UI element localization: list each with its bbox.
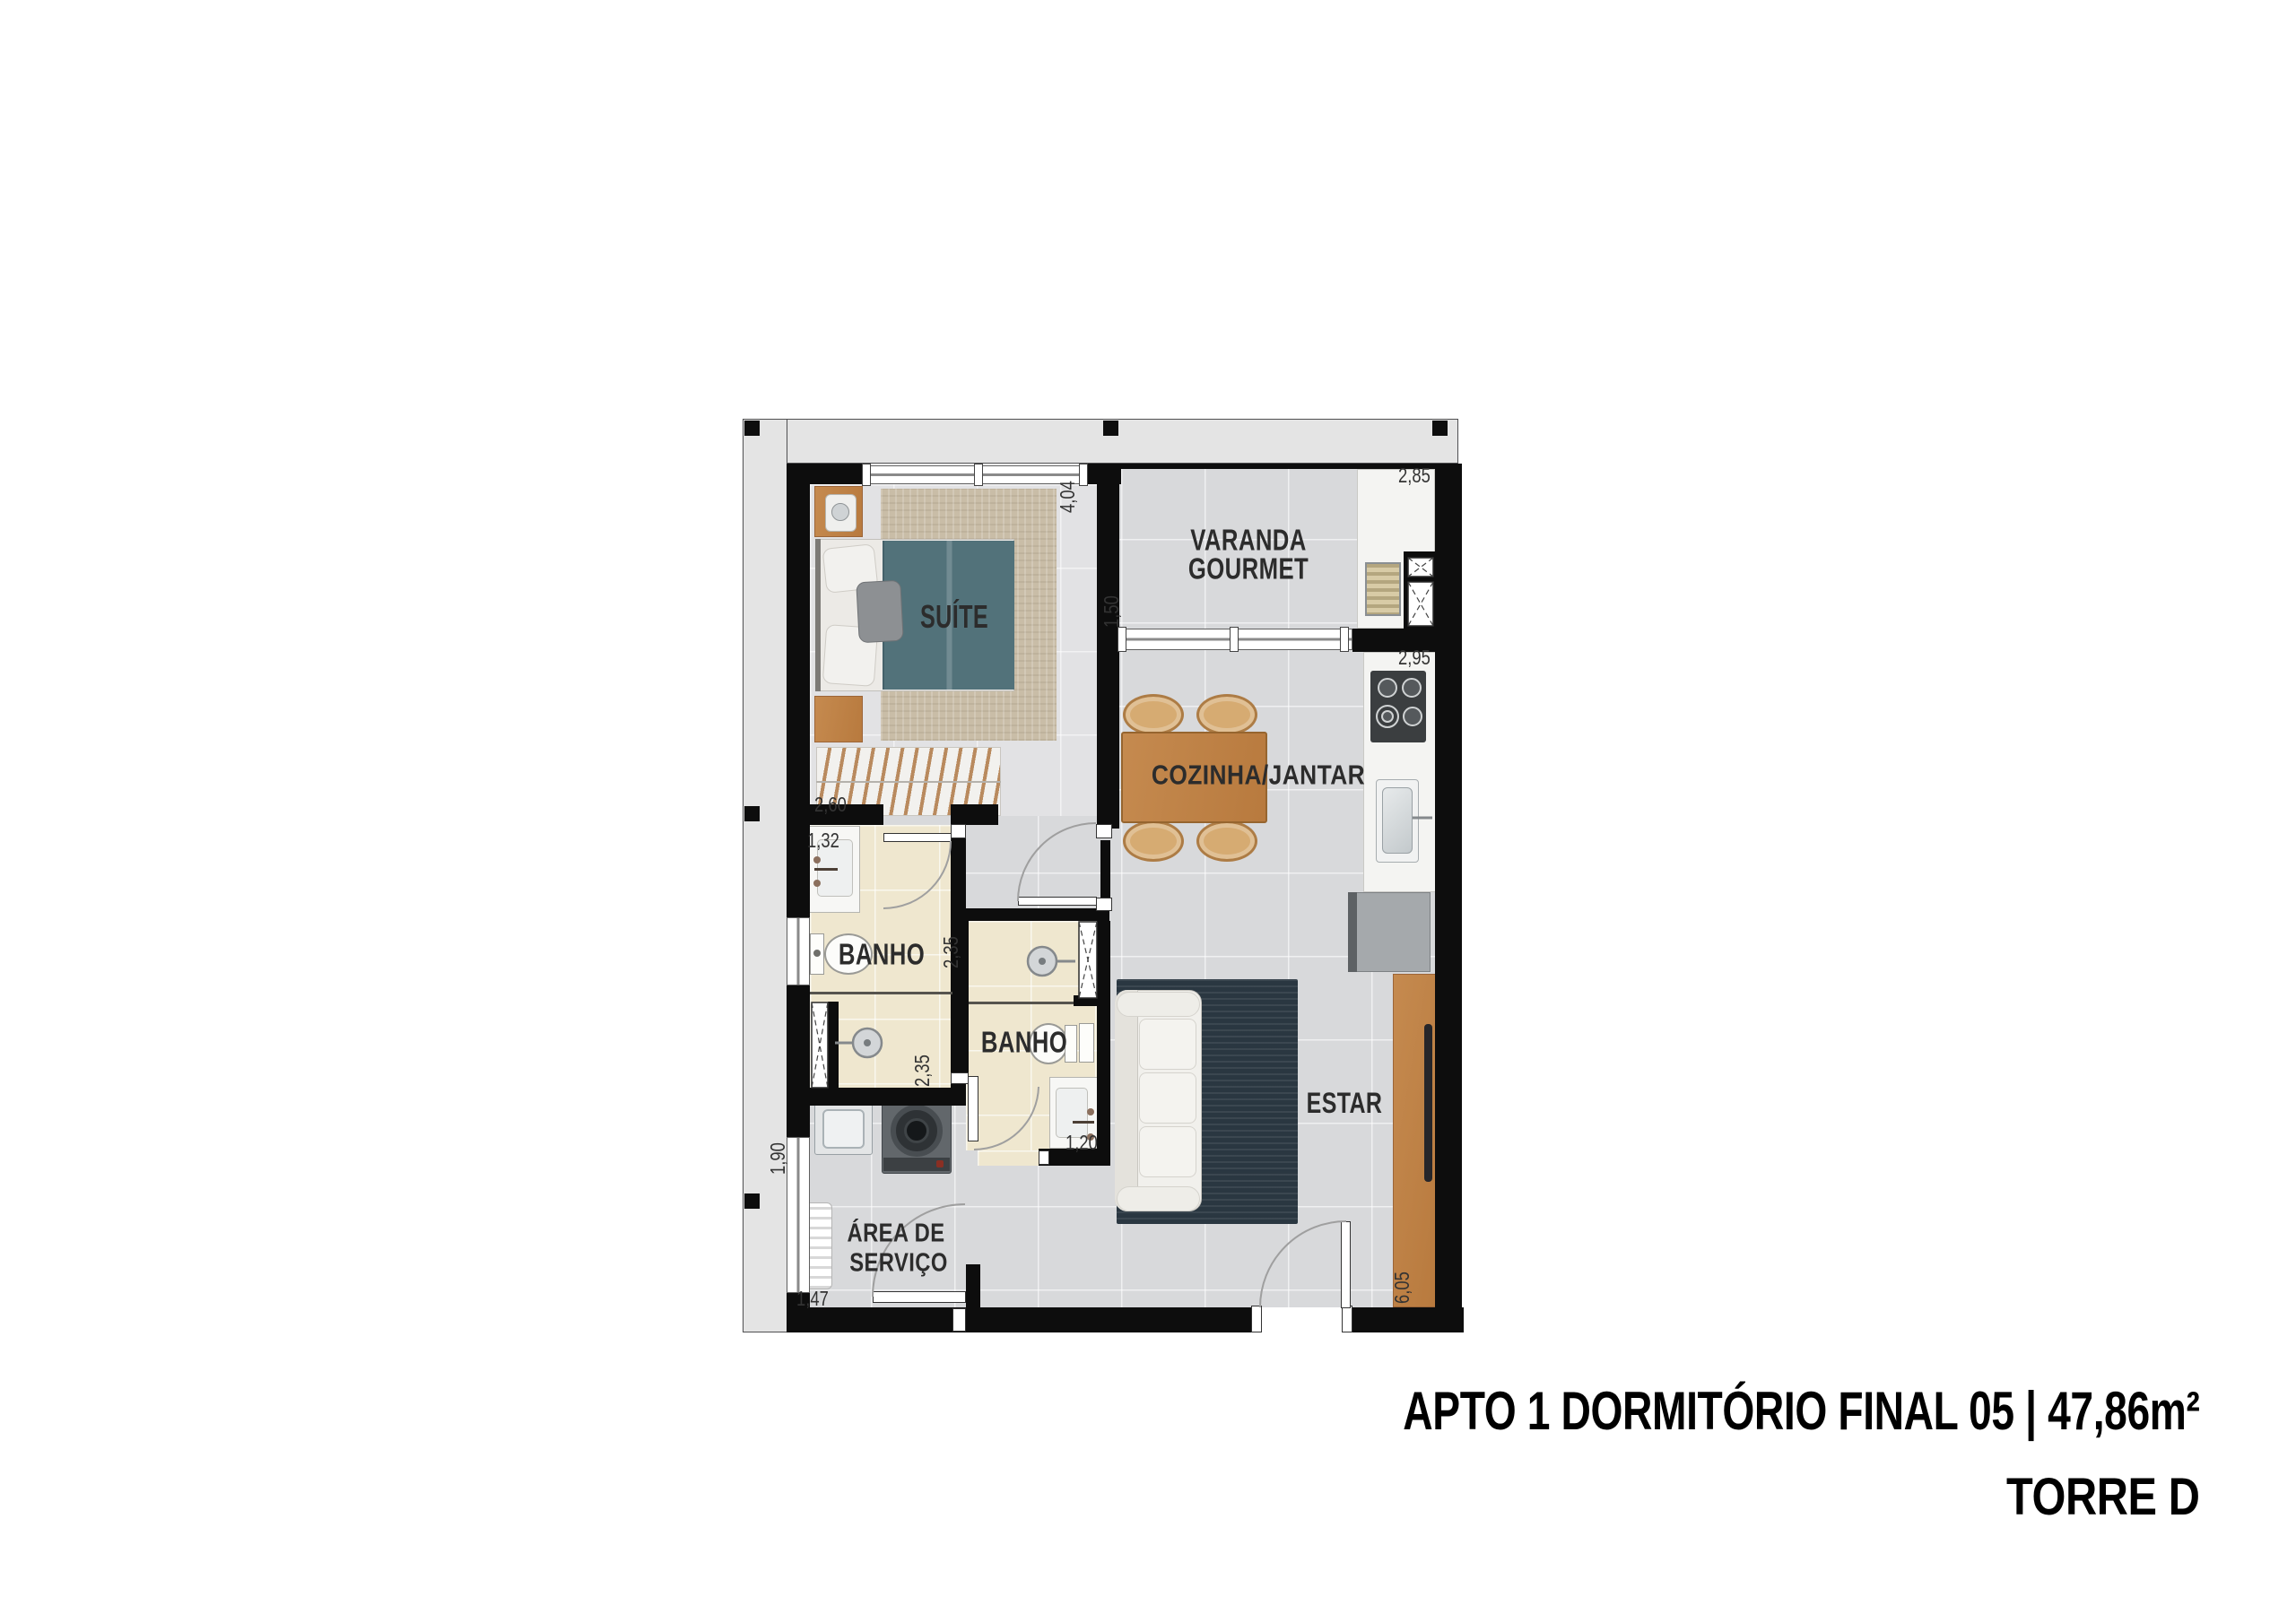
- column-marker: [1103, 421, 1118, 436]
- fridge: [1348, 892, 1431, 972]
- sofa-back: [1115, 990, 1138, 1211]
- sofa-cushion: [1139, 1072, 1196, 1124]
- dim-servico-width: 1,47: [796, 1289, 829, 1309]
- pillow-accent: [856, 580, 903, 644]
- dining-chair: [1196, 820, 1257, 862]
- wall: [787, 1088, 966, 1106]
- faucet-knob: [813, 856, 821, 864]
- room-label-estar: ESTAR: [1307, 1089, 1383, 1117]
- slab-band-top: [743, 419, 1458, 464]
- door-jamb: [1039, 1150, 1049, 1165]
- wall: [1087, 464, 1097, 484]
- wall: [951, 908, 969, 1072]
- wall-suite-divider: [1097, 484, 1119, 829]
- dim-suite-depth: 4,04: [1057, 481, 1078, 513]
- dim-banho-social-depth: 2,35: [941, 936, 961, 968]
- bath-shelf: [1079, 1023, 1094, 1063]
- sofa-cushion: [1139, 1019, 1196, 1070]
- column-marker: [744, 806, 760, 821]
- floor-plan-canvas: SUÍTE VARANDA GOURMET COZINHA/JANTAR BAN…: [0, 0, 2296, 1623]
- column-marker: [1432, 421, 1448, 436]
- window-mullion: [1340, 627, 1349, 652]
- entry-opening: [1262, 1307, 1342, 1332]
- faucet-handle: [814, 868, 838, 871]
- window-mullion: [862, 464, 871, 486]
- washer-drum: [904, 1118, 929, 1143]
- room-label-suite: SUÍTE: [920, 601, 988, 633]
- wall: [1097, 464, 1121, 484]
- sofa-cushion: [1139, 1126, 1196, 1177]
- dim-banho-suite-width: 1,32: [807, 830, 839, 851]
- door-jamb: [1096, 898, 1112, 911]
- tv: [1424, 1024, 1432, 1182]
- door-jamb: [951, 824, 966, 838]
- dim-varanda-depth: 1,50: [1101, 595, 1122, 628]
- room-label-banho-suite: BANHO: [839, 940, 925, 969]
- grill: [1365, 562, 1401, 616]
- toilet-flush: [813, 950, 821, 957]
- wall-stub: [966, 1264, 980, 1307]
- suite-bath-door-leaf: [883, 833, 952, 842]
- wardrobe-divider: [816, 781, 1001, 783]
- dim-varanda-width: 2,85: [1398, 465, 1431, 486]
- kitchen-sink-basin: [1382, 787, 1413, 854]
- shower-stub: [828, 1002, 839, 1088]
- burner: [1403, 707, 1422, 726]
- tray-dish: [831, 503, 849, 521]
- plan-title: APTO 1 DORMITÓRIO FINAL 05 | 47,86m²: [1403, 1384, 2199, 1438]
- service-door-leaf: [873, 1291, 966, 1303]
- room-label-varanda-line1: VARANDA: [1190, 525, 1307, 555]
- nightstand: [814, 696, 863, 742]
- wall-right-exterior: [1435, 464, 1462, 1332]
- room-label-varanda-line2: GOURMET: [1188, 554, 1309, 584]
- wall-bottom-exterior: [787, 1307, 1464, 1332]
- faucet-handle: [1073, 1121, 1094, 1124]
- dining-chair: [1196, 694, 1257, 735]
- burner: [1378, 678, 1397, 698]
- wall: [951, 908, 1109, 921]
- column-marker: [744, 421, 760, 436]
- dim-servico-depth: 1,90: [768, 1142, 788, 1175]
- balcony-edge: [1121, 464, 1437, 469]
- door-jamb: [1251, 1306, 1262, 1332]
- entry-door-leaf: [1341, 1221, 1351, 1308]
- service-window: [787, 1137, 810, 1293]
- faucet-knob: [1087, 1108, 1094, 1115]
- laundry-tub-basin: [822, 1109, 865, 1149]
- window-mullion: [1118, 627, 1126, 652]
- wall: [951, 804, 998, 825]
- burner: [1402, 678, 1422, 698]
- dim-estar-depth: 6,05: [1392, 1271, 1413, 1304]
- dim-closet-width: 2,60: [814, 794, 847, 815]
- fridge-hinge: [1348, 892, 1357, 972]
- dining-chair: [1123, 694, 1184, 735]
- faucet-knob: [813, 880, 821, 887]
- wall: [1097, 921, 1110, 1166]
- window-mullion: [1079, 464, 1088, 486]
- social-bathroom-door-floor: [978, 1150, 1039, 1166]
- window-mullion: [974, 464, 983, 486]
- washer-button: [936, 1160, 944, 1167]
- sofa-arm: [1117, 992, 1200, 1017]
- window-mullion: [1230, 627, 1239, 652]
- wall-hall-door-bar: [1100, 840, 1110, 898]
- hall-door-leaf: [1018, 897, 1097, 906]
- shower-stub: [1074, 995, 1097, 1006]
- door-jamb: [1342, 1306, 1352, 1332]
- social-bath-door-leaf: [968, 1076, 978, 1141]
- room-label-servico-line1: ÁREA DE: [847, 1221, 944, 1247]
- shaft-enclosure: [1404, 551, 1437, 647]
- door-jamb: [952, 1308, 966, 1332]
- burner: [1376, 705, 1399, 728]
- door-jamb: [1096, 824, 1112, 838]
- headboard: [815, 539, 821, 691]
- room-label-cozinha: COZINHA/JANTAR: [1152, 761, 1365, 789]
- room-label-servico-line2: SERVIÇO: [849, 1251, 947, 1277]
- plan-subtitle: TORRE D: [2006, 1471, 2199, 1523]
- dining-chair: [1123, 820, 1184, 862]
- bathroom-window: [787, 917, 810, 985]
- shower-partition: [969, 1002, 1074, 1004]
- dim-banho-suite-depth: 2,35: [912, 1055, 933, 1087]
- sofa-arm: [1117, 1186, 1200, 1211]
- door-jamb: [951, 1072, 969, 1084]
- dim-banho-social-width: 1,20: [1065, 1133, 1098, 1153]
- room-label-banho-social: BANHO: [981, 1028, 1067, 1057]
- dim-cozinha-width: 2,95: [1398, 647, 1431, 668]
- shower-partition: [810, 992, 952, 994]
- column-marker: [744, 1193, 760, 1209]
